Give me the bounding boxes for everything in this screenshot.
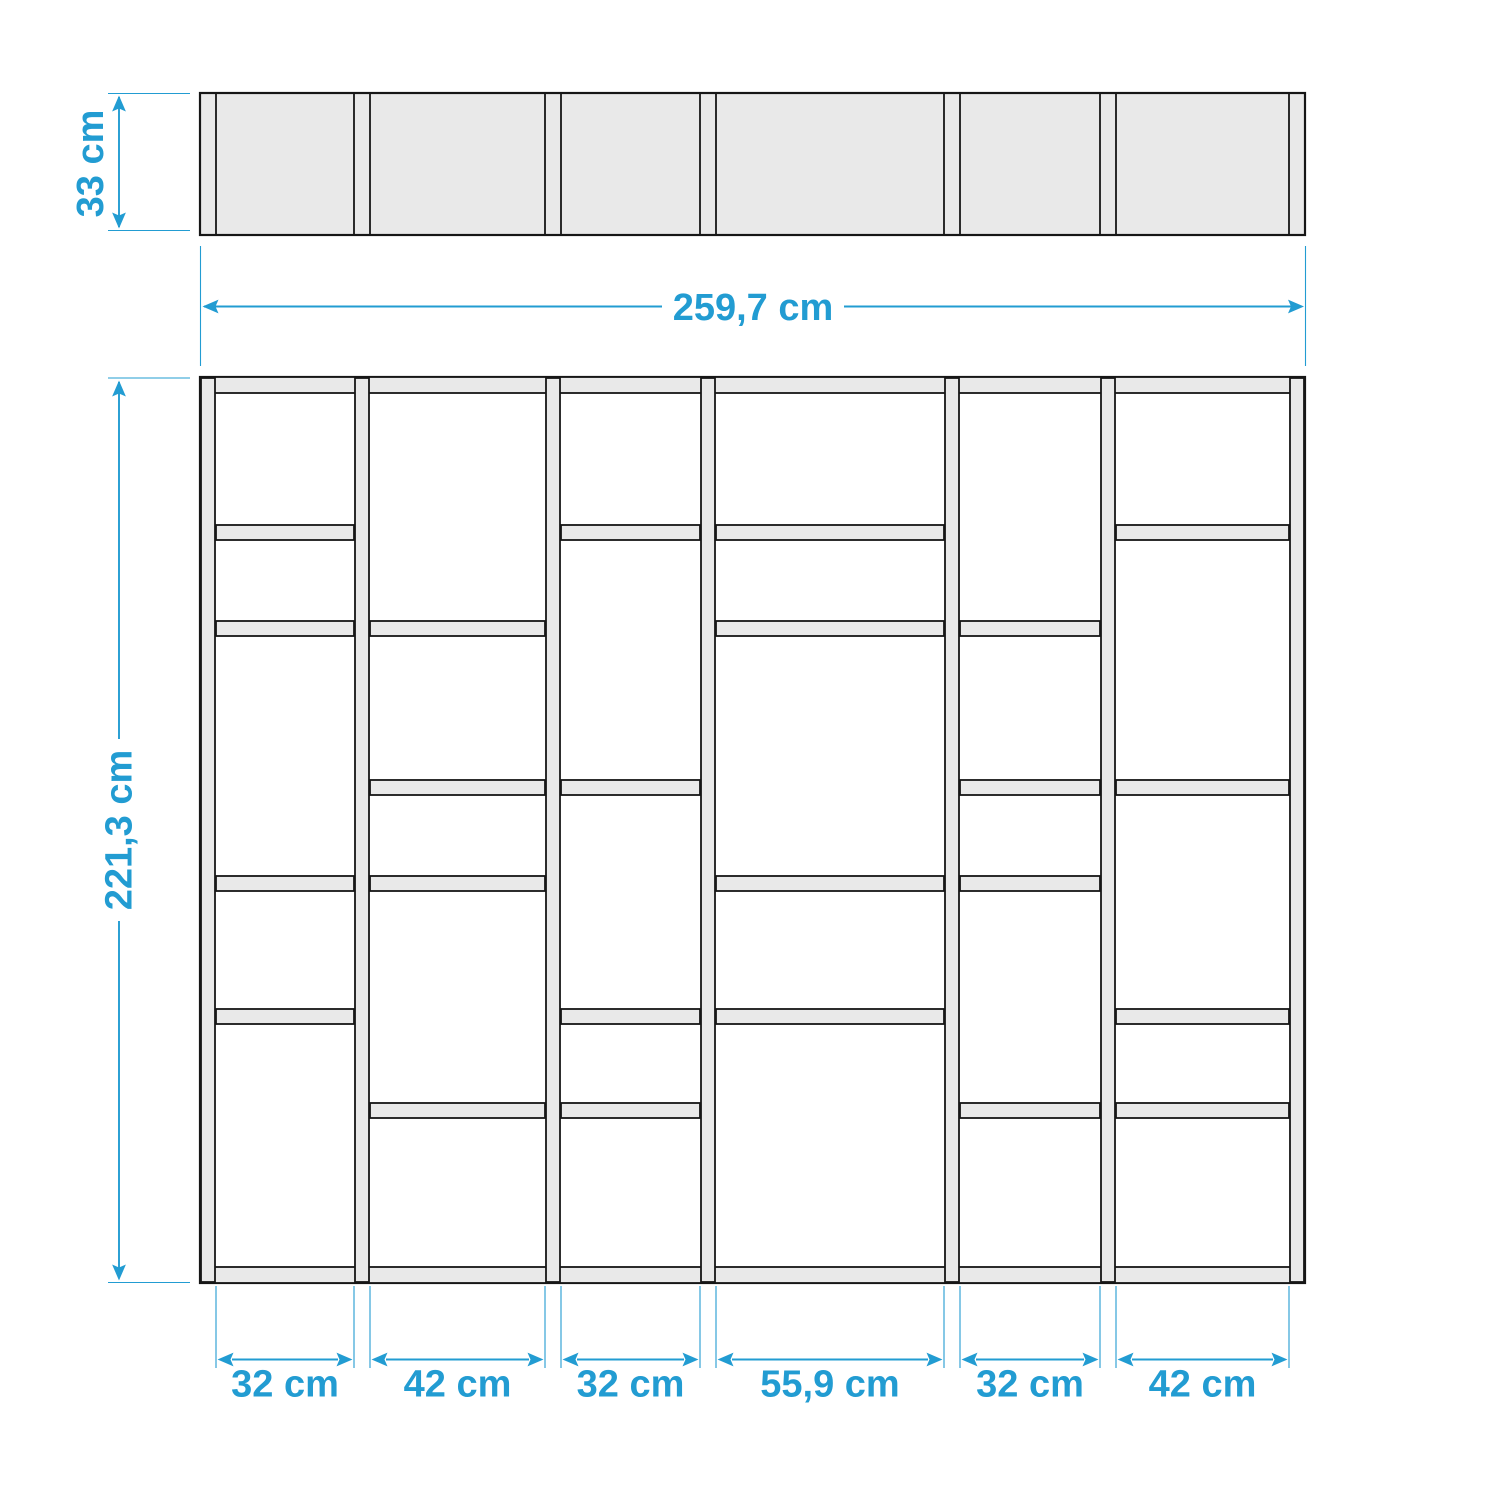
svg-text:33 cm: 33 cm	[70, 110, 112, 218]
svg-text:42 cm: 42 cm	[1149, 1364, 1257, 1406]
svg-text:259,7 cm: 259,7 cm	[673, 287, 834, 329]
svg-text:32 cm: 32 cm	[231, 1364, 339, 1406]
svg-text:221,3 cm: 221,3 cm	[99, 750, 141, 911]
svg-text:42 cm: 42 cm	[404, 1364, 512, 1406]
svg-text:55,9 cm: 55,9 cm	[760, 1364, 899, 1406]
svg-text:32 cm: 32 cm	[976, 1364, 1084, 1406]
svg-text:32 cm: 32 cm	[577, 1364, 685, 1406]
